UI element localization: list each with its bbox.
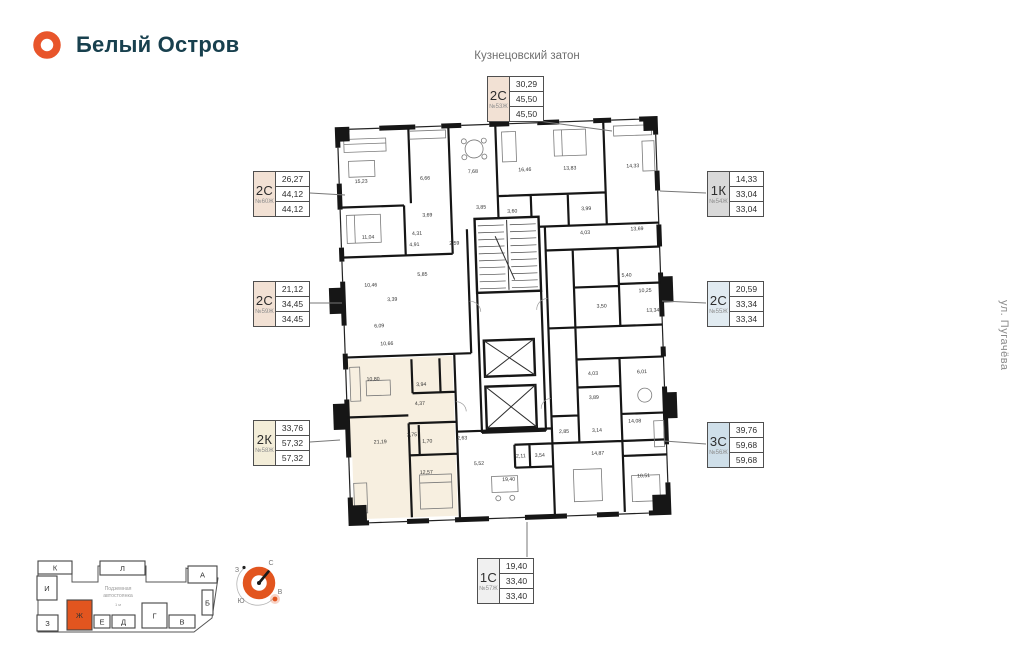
area-value: 21,12 <box>276 282 309 296</box>
area-value: 33,40 <box>500 588 533 603</box>
apartment-number: №56Ж <box>709 450 728 456</box>
area-value: 45,50 <box>510 106 543 121</box>
area-value: 34,45 <box>276 311 309 326</box>
area-value: 33,34 <box>730 311 763 326</box>
area-value: 14,33 <box>730 172 763 186</box>
apartment-badge-54[interactable]: 1К №54Ж 14,33 33,04 33,04 <box>707 171 764 217</box>
apartment-type-cell: 3С №56Ж <box>708 423 730 467</box>
area-value: 33,76 <box>276 421 309 435</box>
area-value: 33,04 <box>730 186 763 201</box>
apartment-number: №57Ж <box>479 586 498 592</box>
area-value: 33,04 <box>730 201 763 216</box>
apartment-type: 2С <box>256 183 273 198</box>
area-value: 59,68 <box>730 452 763 467</box>
area-value: 34,45 <box>276 296 309 311</box>
apartment-number: №53Ж <box>489 104 508 110</box>
area-value: 33,34 <box>730 296 763 311</box>
area-value: 59,68 <box>730 437 763 452</box>
area-value: 19,40 <box>500 559 533 573</box>
area-value: 44,12 <box>276 186 309 201</box>
area-value: 45,50 <box>510 91 543 106</box>
apartment-type-cell: 2К №58Ж <box>254 421 276 465</box>
apartment-type: 3С <box>710 434 727 449</box>
apartment-badge-59[interactable]: 2С №59Ж 21,12 34,45 34,45 <box>253 281 310 327</box>
apartment-type-cell: 1С №57Ж <box>478 559 500 603</box>
apartment-type-cell: 2С №60Ж <box>254 172 276 216</box>
apartment-type-cell: 2С №59Ж <box>254 282 276 326</box>
apartment-number: №59Ж <box>255 309 274 315</box>
apartment-badge-55[interactable]: 2С №55Ж 20,59 33,34 33,34 <box>707 281 764 327</box>
apartment-badge-58[interactable]: 2К №58Ж 33,76 57,32 57,32 <box>253 420 310 466</box>
area-value: 39,76 <box>730 423 763 437</box>
area-value: 30,29 <box>510 77 543 91</box>
apartment-type: 2С <box>490 88 507 103</box>
apartment-type: 2К <box>257 432 272 447</box>
area-value: 57,32 <box>276 450 309 465</box>
apartment-badge-56[interactable]: 3С №56Ж 39,76 59,68 59,68 <box>707 422 764 468</box>
apartment-type: 1С <box>480 570 497 585</box>
area-value: 33,40 <box>500 573 533 588</box>
apartment-type-cell: 2С №53Ж <box>488 77 510 121</box>
apartment-number: №60Ж <box>255 199 274 205</box>
apartment-type: 2С <box>256 293 273 308</box>
page: Белый Остров Кузнецовский затон ул. Пуга… <box>0 0 1024 672</box>
apartment-type: 2С <box>710 293 727 308</box>
apartment-number: №58Ж <box>255 448 274 454</box>
area-value: 26,27 <box>276 172 309 186</box>
area-value: 20,59 <box>730 282 763 296</box>
apartment-badge-60[interactable]: 2С №60Ж 26,27 44,12 44,12 <box>253 171 310 217</box>
apartment-number: №54Ж <box>709 199 728 205</box>
area-value: 44,12 <box>276 201 309 216</box>
apartment-badge-57[interactable]: 1С №57Ж 19,40 33,40 33,40 <box>477 558 534 604</box>
apartment-type-cell: 1К №54Ж <box>708 172 730 216</box>
apartment-number: №55Ж <box>709 309 728 315</box>
apartment-type: 1К <box>711 183 726 198</box>
area-value: 57,32 <box>276 435 309 450</box>
apartment-type-cell: 2С №55Ж <box>708 282 730 326</box>
apartment-badge-53[interactable]: 2С №53Ж 30,29 45,50 45,50 <box>487 76 544 122</box>
